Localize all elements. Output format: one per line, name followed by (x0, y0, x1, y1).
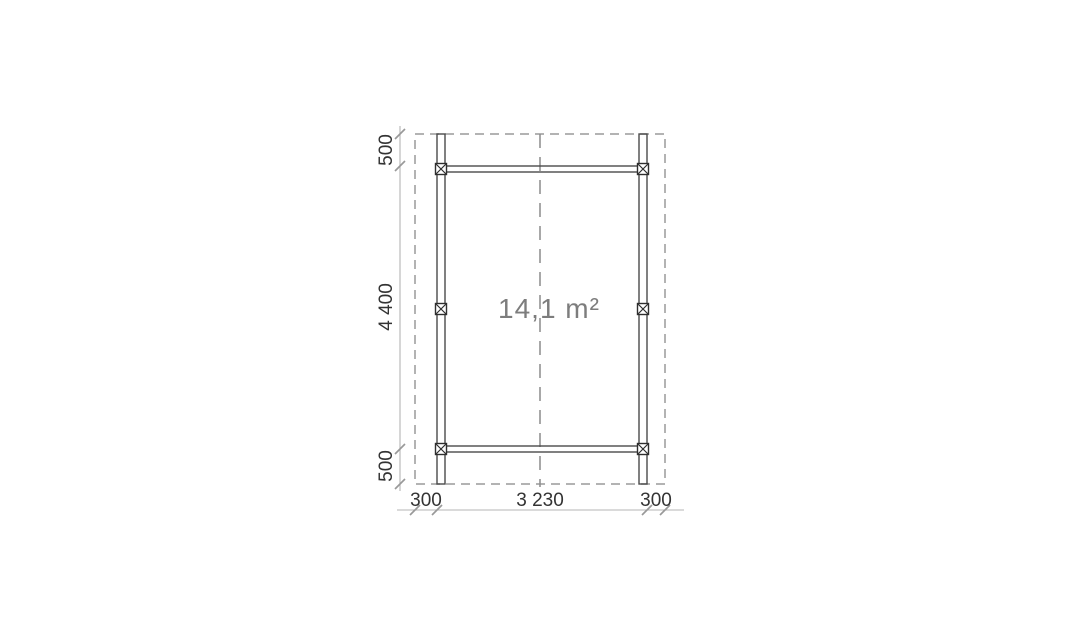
post-marker-middle-left (436, 304, 447, 315)
dim-label-horizontal-center: 3 230 (516, 490, 564, 511)
dim-label-vertical-middle: 4 400 (376, 283, 397, 331)
dim-label-vertical-bottom: 500 (376, 450, 397, 482)
dim-label-horizontal-left: 300 (410, 490, 442, 511)
post-marker-bottom-right (638, 444, 649, 455)
area-label: 14,1 m² (498, 293, 600, 324)
floor-plan-canvas: 500 4 400 500 300 3 230 300 14,1 m² (0, 0, 1080, 626)
post-marker-middle-right (638, 304, 649, 315)
post-marker-bottom-left (436, 444, 447, 455)
post-marker-top-right (638, 164, 649, 175)
post-marker-top-left (436, 164, 447, 175)
dim-label-horizontal-right: 300 (640, 490, 672, 511)
top-cross-beam (437, 166, 647, 172)
bottom-cross-beam (437, 446, 647, 452)
horizontal-dimension-chain: 300 3 230 300 (397, 490, 684, 515)
dim-label-vertical-top: 500 (376, 134, 397, 166)
floor-plan-drawing: 500 4 400 500 300 3 230 300 14,1 m² (0, 0, 1080, 626)
vertical-dimension-chain: 500 4 400 500 (376, 126, 405, 491)
